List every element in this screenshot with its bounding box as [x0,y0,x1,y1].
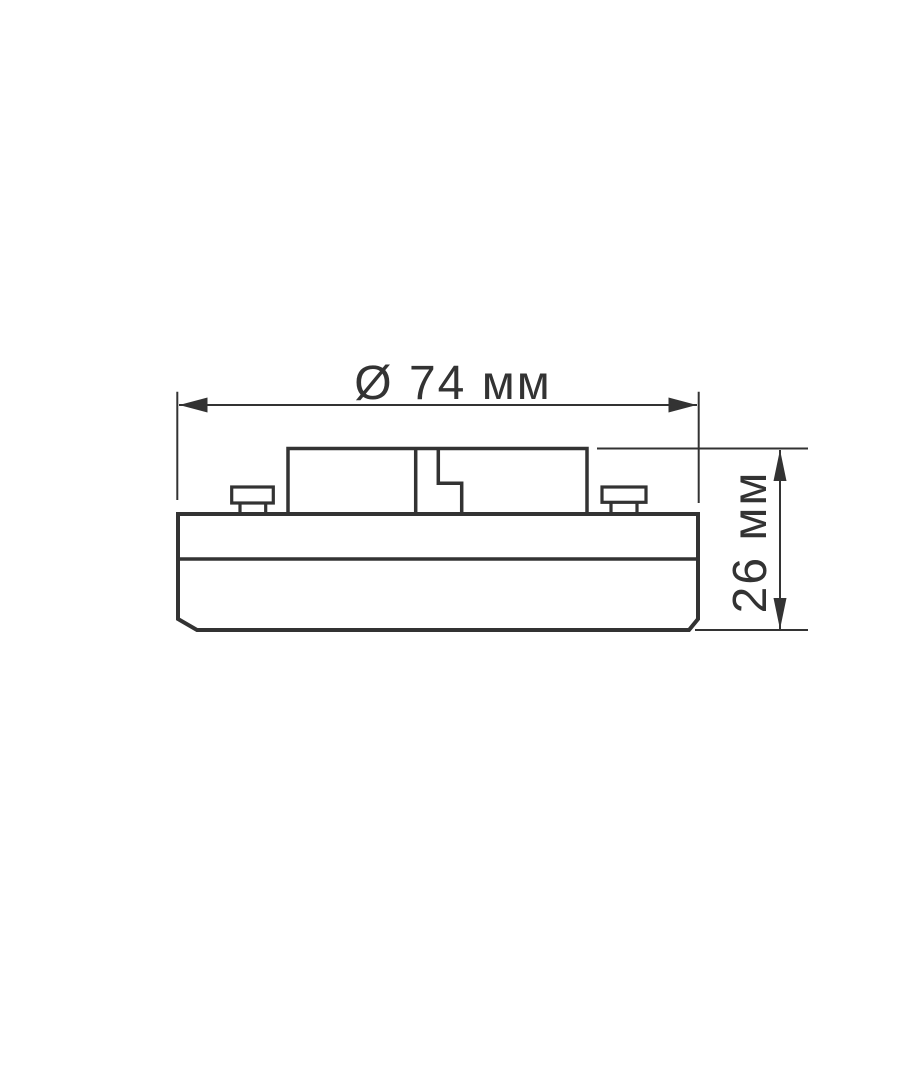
drawing-canvas: Ø 74 мм 26 мм [0,0,910,1080]
diameter-dimension-label: Ø 74 мм [354,357,551,410]
lamp-dimension-drawing: Ø 74 мм 26 мм [0,0,910,1080]
height-dimension-label: 26 мм [724,471,777,614]
